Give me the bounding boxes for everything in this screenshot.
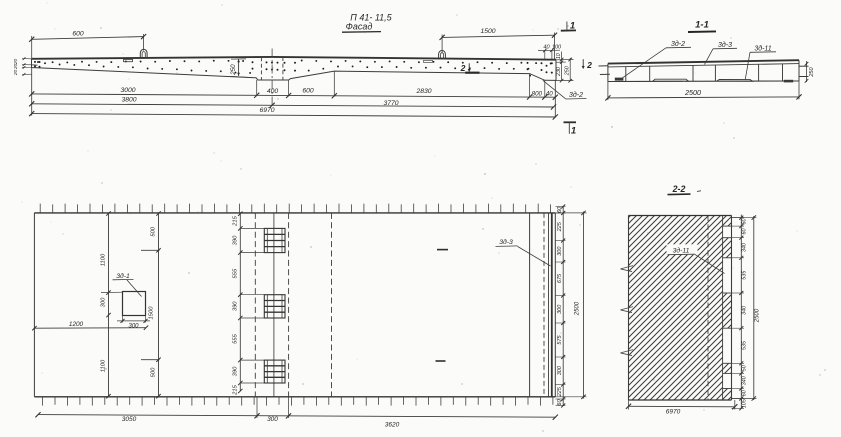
svg-text:3800: 3800 [121,97,136,104]
svg-text:300: 300 [101,297,107,307]
svg-text:60: 60 [741,229,747,235]
svg-text:3д-2: 3д-2 [569,91,583,99]
svg-text:400: 400 [267,88,279,95]
svg-text:10: 10 [556,53,562,59]
svg-text:1: 1 [571,126,576,137]
svg-text:2-2: 2-2 [672,184,686,194]
svg-text:225: 225 [557,221,563,232]
svg-text:390: 390 [233,235,239,245]
svg-text:50: 50 [741,365,747,371]
svg-text:1-1: 1-1 [695,20,709,31]
svg-text:600: 600 [302,88,314,95]
svg-text:40: 40 [543,45,550,51]
svg-text:555: 555 [233,333,239,343]
svg-text:600: 600 [72,30,84,37]
svg-text:60: 60 [557,206,563,213]
svg-text:230: 230 [556,67,562,77]
svg-text:1: 1 [570,21,575,32]
svg-text:2500: 2500 [574,301,580,316]
svg-text:20: 20 [13,70,19,77]
svg-text:3620: 3620 [385,421,400,428]
svg-text:300: 300 [557,304,563,314]
svg-text:3770: 3770 [383,100,398,107]
svg-text:340: 340 [741,243,747,252]
svg-text:800: 800 [532,90,543,97]
svg-text:250: 250 [809,66,815,77]
svg-text:2: 2 [460,63,466,73]
svg-text:225: 225 [557,386,563,397]
svg-text:300: 300 [267,416,278,423]
svg-text:1500: 1500 [149,306,155,320]
svg-text:105: 105 [741,398,747,408]
svg-text:6970: 6970 [259,107,274,114]
svg-text:300: 300 [557,365,563,375]
svg-text:340: 340 [741,306,747,315]
svg-text:40: 40 [546,90,553,97]
svg-text:300: 300 [557,246,563,256]
svg-text:535: 535 [741,340,747,350]
svg-text:575: 575 [557,334,563,344]
svg-text:1200: 1200 [69,321,84,328]
svg-text:1500: 1500 [480,28,495,35]
svg-text:100: 100 [552,44,562,50]
svg-text:3д-1: 3д-1 [116,272,130,280]
svg-text:535: 535 [741,270,747,280]
svg-text:3д-3: 3д-3 [718,41,732,49]
svg-text:1100: 1100 [101,359,107,372]
svg-text:20: 20 [13,64,19,71]
svg-text:250: 250 [565,66,571,76]
svg-text:2: 2 [586,60,592,70]
svg-text:555: 555 [233,268,239,278]
svg-text:3д-11: 3д-11 [754,44,771,52]
svg-text:300: 300 [128,324,139,330]
svg-text:500: 500 [151,367,157,377]
svg-text:390: 390 [233,366,239,376]
svg-text:250: 250 [230,64,237,76]
svg-text:500: 500 [151,226,157,236]
svg-text:215: 215 [233,215,239,226]
svg-text:215: 215 [233,384,239,395]
svg-text:390: 390 [233,301,239,311]
svg-text:3д-2: 3д-2 [671,40,685,48]
svg-text:3д-11: 3д-11 [673,246,690,254]
svg-text:60: 60 [741,390,747,396]
svg-text:3000: 3000 [120,87,135,94]
svg-text:60: 60 [741,219,747,225]
svg-text:3д-3: 3д-3 [499,238,513,246]
svg-text:2830: 2830 [415,88,431,95]
svg-text:2500: 2500 [684,88,701,97]
svg-text:3050: 3050 [122,416,137,423]
svg-text:2500: 2500 [754,308,760,323]
svg-text:60: 60 [557,399,563,406]
svg-text:Фасад: Фасад [346,22,373,32]
svg-text:6970: 6970 [666,408,681,415]
svg-text:340: 340 [741,376,747,385]
svg-text:1100: 1100 [101,253,107,266]
svg-text:675: 675 [557,273,563,283]
